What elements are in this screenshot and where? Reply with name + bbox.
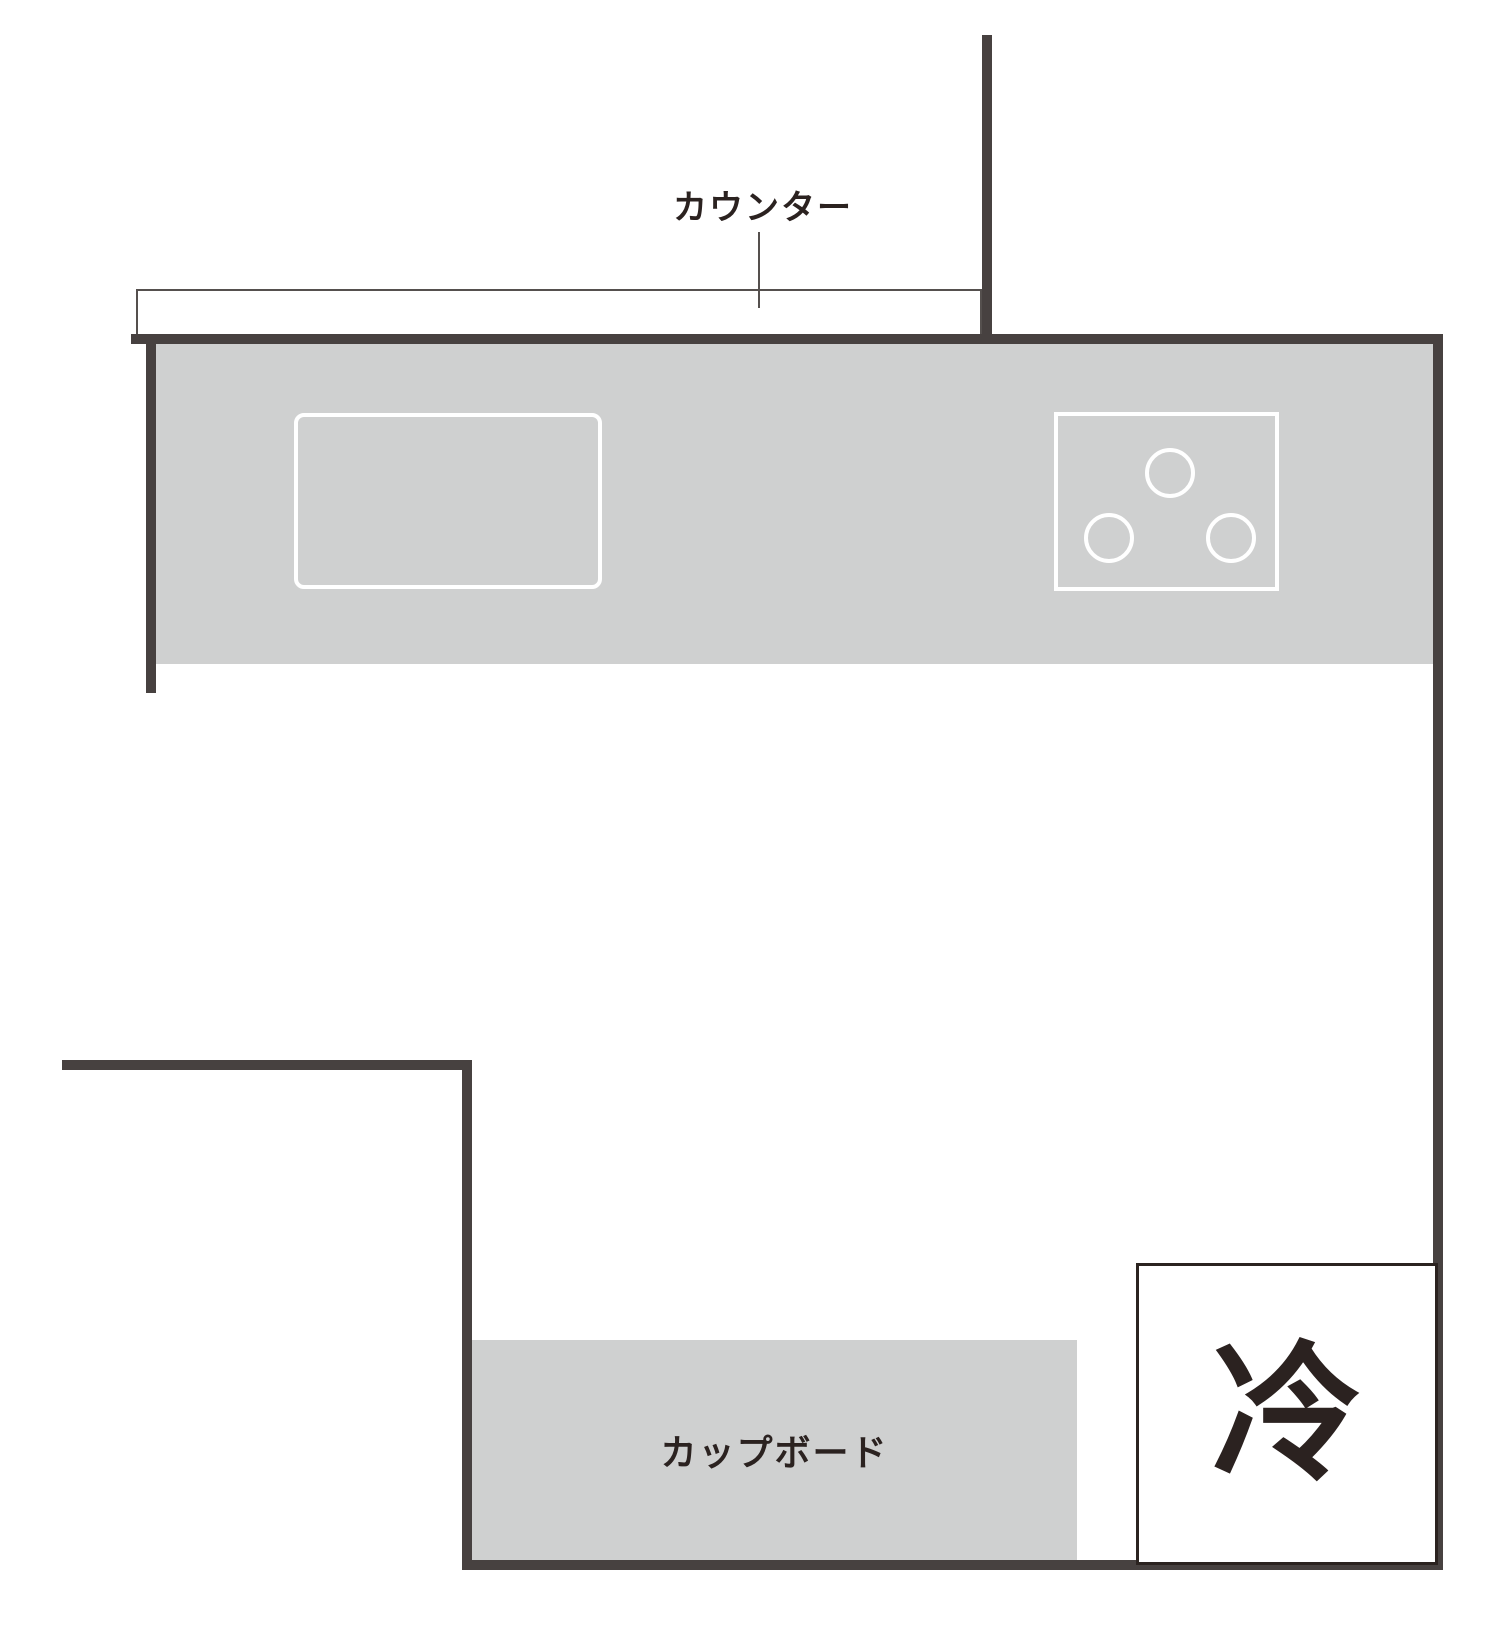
cupboard: カップボード <box>472 1340 1077 1560</box>
cupboard-label: カップボード <box>660 1424 888 1476</box>
refrigerator-label: 冷 <box>1212 1339 1362 1489</box>
burner-icon <box>1206 513 1256 563</box>
burner-icon <box>1145 448 1195 498</box>
counter-label: カウンター <box>613 186 913 230</box>
wall-mid-horizontal <box>62 1060 472 1070</box>
kitchen-floor-plan: カウンター カップボード 冷 <box>0 0 1504 1625</box>
stove <box>1054 412 1279 591</box>
sink <box>294 413 602 589</box>
wall-left <box>146 334 156 693</box>
wall-top <box>131 334 1443 344</box>
counter-leader-line <box>758 232 760 308</box>
wall-upper-vertical <box>982 35 992 344</box>
burner-icon <box>1084 513 1134 563</box>
counter-top-rect <box>136 289 982 336</box>
refrigerator: 冷 <box>1136 1263 1438 1565</box>
wall-mid-vertical <box>462 1060 472 1570</box>
